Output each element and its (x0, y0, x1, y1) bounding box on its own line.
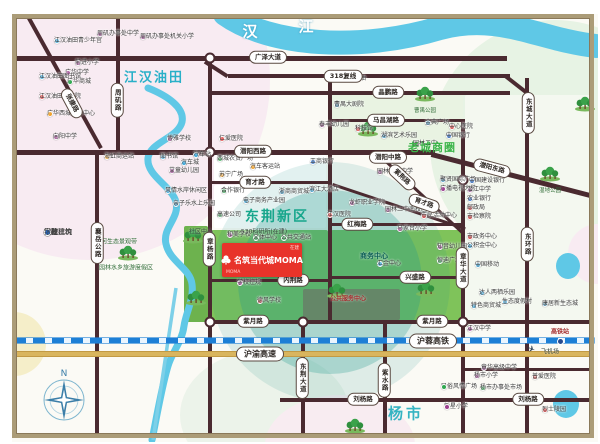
park-trees-icon (344, 418, 366, 438)
poi-label: 普爱医院 (532, 374, 556, 380)
poi-label: 滨江大酒店 (309, 187, 339, 193)
poi-label: 市检察院 (467, 214, 491, 220)
location-map: ✈ 曹禺公园湿地公园 江汉油田青少年宫周矶办事处中学周矶办事处机关小学前进小学广… (0, 0, 600, 444)
poi-label: 浙商商贸城 (279, 189, 309, 195)
poi-label: 龙虾职业学院 (349, 200, 385, 206)
road-label: 东城大道 (522, 92, 535, 134)
poi-label: 康居新生态城 (542, 301, 578, 307)
road (210, 181, 332, 184)
school-dot-icon (444, 404, 450, 410)
park-label: 曹禺公园 (414, 106, 436, 114)
poi-label: 泰丰幼儿园 (319, 122, 349, 128)
compass-north-label: N (61, 369, 68, 379)
road-label: 刘杨路 (512, 393, 544, 406)
poi-label: 邮政局 (467, 205, 485, 211)
poi-label: 德风学校 (257, 298, 281, 304)
road-label: 兴盛路 (399, 271, 431, 284)
road-label: 章华大道 (456, 247, 469, 289)
rail-station-marker (557, 338, 564, 345)
poi-label: 亲子乐水上乐园 (173, 201, 215, 207)
poi-label: 公积金中心 (467, 243, 497, 249)
poi-label: 市民活动中心 (421, 213, 457, 219)
road-label: 沪蓉高铁 (409, 334, 457, 349)
poi-label: 周矶办事处中学 (97, 31, 139, 37)
road-label: 318复线 (324, 70, 363, 83)
legend-label: 银行 (44, 227, 58, 237)
area-text: 公共服务中心 (330, 294, 366, 303)
project-status: 在建 (290, 245, 299, 251)
poi-label: 工商银行 (310, 159, 334, 165)
poi-label: 市政务中心 (467, 234, 497, 240)
road-label: 东环路 (521, 227, 534, 262)
poi-label: 江汉油田图书馆 (39, 74, 81, 80)
road-label: 紫水路 (378, 363, 391, 398)
road-label: 襄岳公路 (91, 222, 104, 264)
poi-label: 周矶办事处机关小学 (140, 34, 194, 40)
poi-label: 汽车客运站 (250, 164, 280, 170)
road (210, 91, 510, 95)
park-label: 湿地公园 (539, 186, 561, 194)
road-label: 广泽大道 (249, 51, 287, 64)
compass-rose: N (38, 366, 90, 424)
road-label: 周矶路 (111, 83, 124, 118)
road-node (205, 317, 216, 328)
poi-label: 生态度假村 (502, 299, 532, 305)
poi-label: 汽车城 (181, 160, 199, 166)
poi-label: 科技馆 (355, 126, 373, 132)
area-text: 飞机场 (541, 347, 559, 356)
poi-label: 金典广场 (425, 120, 449, 126)
road-label: 刘杨路 (347, 393, 379, 406)
shop-dot-icon (441, 384, 447, 390)
district-label: 江汉油田 (124, 67, 184, 86)
road-label: 章杨路 (203, 232, 216, 267)
road (95, 150, 99, 438)
park-trees-icon (415, 281, 437, 301)
district-label: 汉 (242, 21, 257, 42)
district-label: 江 (298, 16, 313, 37)
margin (0, 0, 600, 14)
poi-label: 汽车站 (193, 152, 211, 158)
district-label: 杨市 (388, 403, 424, 424)
poi-label: 中国建设银行 (469, 178, 505, 184)
south-lake (553, 390, 579, 418)
poi-label: 高速公司 (217, 212, 241, 218)
poi-label: 向阳中学 (53, 134, 77, 140)
project-subtext: MOMA (226, 270, 240, 275)
road (228, 74, 510, 78)
poi-label: 江汉油田青少年宫 (54, 38, 102, 44)
poi-label: 文体中心 (253, 235, 277, 241)
area-text: 园林水乡旅游度假区 (99, 263, 153, 272)
poi-label: 风情水岸休闲区 (165, 188, 207, 194)
road-node (205, 53, 216, 64)
poi-label: 烈士陵园 (542, 407, 566, 413)
poi-label: 仁爱医院 (219, 136, 243, 142)
road-label: 潜阳西路 (234, 145, 272, 158)
district-label: 东荆新区 (245, 206, 309, 226)
poi-label: 汇金中心 (377, 261, 401, 267)
road-label: 东荆大道 (296, 357, 309, 399)
canal (153, 288, 176, 440)
poi-label: 图书馆 (160, 154, 178, 160)
poi-label: 学校控规 (237, 280, 261, 286)
poi-label: 合作银行 (221, 188, 245, 194)
road-label: 红梅路 (341, 218, 373, 231)
poi-label: 杨市小学 (474, 373, 498, 379)
project-block-moma: 名筑当代城MOMA 在建 MOMA (222, 243, 302, 277)
area-text: 高铁站 (551, 327, 569, 336)
road-label: 紫月路 (416, 315, 448, 328)
poi-label: 潜江中学 (467, 187, 491, 193)
poi-label: 杨市办事处市场 (480, 385, 522, 391)
project-logo-icon (221, 255, 231, 265)
poi-label: 章华高级中学 (481, 365, 517, 371)
expressway-line (14, 351, 594, 357)
poi-label: 农业银行 (467, 196, 491, 202)
margin (0, 0, 12, 444)
road (280, 398, 593, 402)
road-label: 沪渝高速 (236, 347, 284, 362)
poi-label: 苏宁广场 (219, 172, 243, 178)
park-trees-icon: 湿地公园 (539, 166, 561, 194)
road-label: 晶鹏路 (372, 86, 404, 99)
poi-label: 前进小学 (75, 60, 99, 66)
poi-label: 江汉中学 (467, 326, 491, 332)
district-label: 老城商圈 (408, 139, 456, 155)
high-speed-rail-line (14, 338, 594, 343)
poi-label: 电子商务产业园 (243, 198, 285, 204)
road-label: 马昌湖路 (367, 114, 405, 127)
poi-label: 达人两栖乐园 (479, 290, 515, 296)
road-label: 潜阳中路 (369, 151, 407, 164)
poi-label: 博雅学校 (167, 136, 191, 142)
poi-label: 特色商贸城 (471, 303, 501, 309)
road-label: 紫月路 (237, 315, 269, 328)
park-trees-icon (185, 290, 207, 310)
road (210, 279, 331, 282)
poi-label: 马家台小学 (397, 226, 427, 232)
poi-label: 中国移动 (475, 262, 499, 268)
east-lake (556, 253, 580, 279)
poi-label: 曹禺大剧院 (334, 102, 364, 108)
han-river (225, 14, 596, 46)
road-node (298, 317, 309, 328)
project-name: 名筑当代城MOMA (234, 255, 303, 266)
park-trees-icon (574, 96, 596, 116)
road-label: 育才路 (239, 176, 271, 189)
road (331, 276, 462, 279)
area-text: 商务中心 (360, 251, 388, 261)
poi-label: 海虹商运站 (104, 154, 134, 160)
poi-label: 艾童幼儿园 (169, 168, 199, 174)
area-text: 530科研所(在建) (241, 227, 287, 236)
poi-label: 中心医院 (449, 124, 473, 130)
poi-label: 公共交通站 (281, 235, 311, 241)
park-trees-icon: 曹禺公园 (414, 86, 436, 114)
